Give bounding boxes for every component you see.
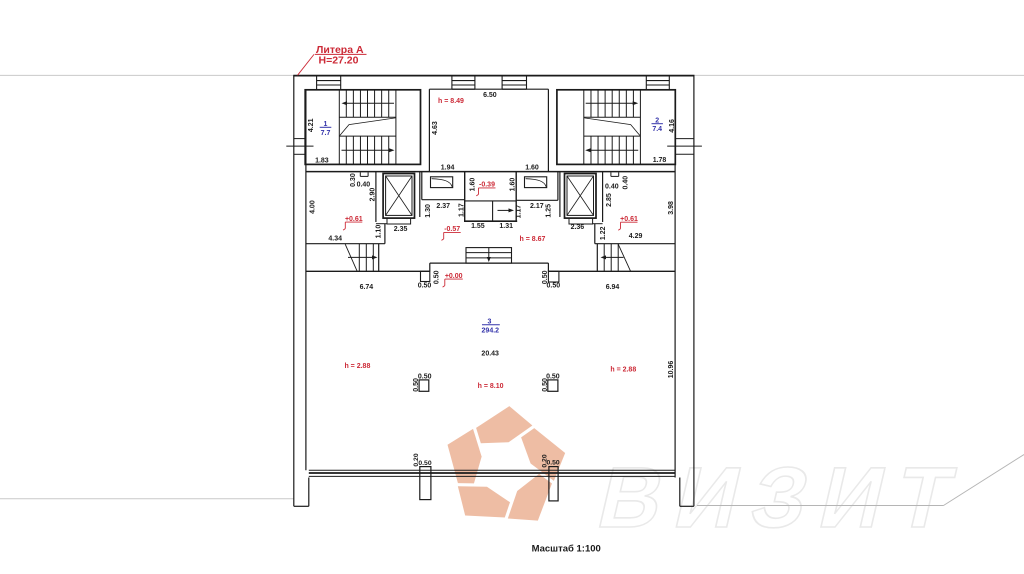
svg-text:0.50: 0.50 [546,282,560,289]
svg-text:Масштаб 1:100: Масштаб 1:100 [532,544,601,555]
svg-text:1.30: 1.30 [425,204,432,218]
svg-text:1.60: 1.60 [510,178,517,192]
svg-text:0.50: 0.50 [418,283,432,290]
svg-text:0.40: 0.40 [623,176,630,190]
svg-text:6.94: 6.94 [606,284,620,291]
svg-text:4.63: 4.63 [432,121,439,135]
svg-text:1.83: 1.83 [315,157,329,164]
svg-text:4.16: 4.16 [669,119,676,133]
svg-text:h = 2.88: h = 2.88 [610,366,636,373]
svg-text:4.29: 4.29 [629,233,643,240]
svg-text:1.60: 1.60 [470,178,477,192]
svg-text:h = 8.10: h = 8.10 [478,383,504,390]
svg-text:6.74: 6.74 [360,284,374,291]
svg-text:1.22: 1.22 [600,226,607,240]
svg-text:6.50: 6.50 [483,92,497,99]
svg-text:0.40: 0.40 [605,183,619,190]
svg-text:4.00: 4.00 [310,200,317,214]
svg-text:1.10: 1.10 [375,225,382,239]
svg-text:1.31: 1.31 [499,223,513,230]
svg-text:4.21: 4.21 [308,118,315,132]
svg-text:0.50: 0.50 [546,460,559,467]
svg-text:1.78: 1.78 [653,157,667,164]
svg-text:3.98: 3.98 [668,201,675,215]
svg-text:1.60: 1.60 [525,164,539,171]
svg-text:h = 2.88: h = 2.88 [344,363,370,370]
svg-text:1.94: 1.94 [441,164,455,171]
svg-text:Н=27.20: Н=27.20 [319,54,359,66]
svg-text:1.17: 1.17 [516,205,523,219]
svg-text:4.34: 4.34 [328,236,342,243]
svg-text:10.96: 10.96 [668,361,675,379]
svg-text:2.90: 2.90 [370,188,377,202]
svg-text:1: 1 [324,121,328,128]
svg-text:1.25: 1.25 [545,204,552,218]
svg-text:1.17: 1.17 [459,203,466,217]
svg-text:0.50: 0.50 [418,460,431,467]
svg-text:2.37: 2.37 [436,203,450,210]
svg-text:1.55: 1.55 [471,223,485,230]
svg-text:ВИЗИТ: ВИЗИТ [590,450,977,546]
svg-text:h = 8.67: h = 8.67 [520,236,546,243]
svg-text:7.4: 7.4 [652,126,662,133]
svg-text:2.17: 2.17 [530,203,544,210]
svg-text:0.50: 0.50 [433,270,440,284]
svg-text:2.35: 2.35 [394,226,408,233]
svg-text:0.50: 0.50 [418,374,432,381]
svg-text:0.50: 0.50 [542,378,549,392]
svg-text:2.36: 2.36 [571,224,585,231]
svg-text:h = 8.49: h = 8.49 [438,98,464,105]
svg-text:2.85: 2.85 [606,193,613,207]
svg-text:7.7: 7.7 [321,130,331,137]
svg-text:0.40: 0.40 [357,182,371,189]
svg-text:294.2: 294.2 [482,327,500,334]
svg-text:20.43: 20.43 [481,351,499,358]
svg-text:0.50: 0.50 [413,378,420,392]
